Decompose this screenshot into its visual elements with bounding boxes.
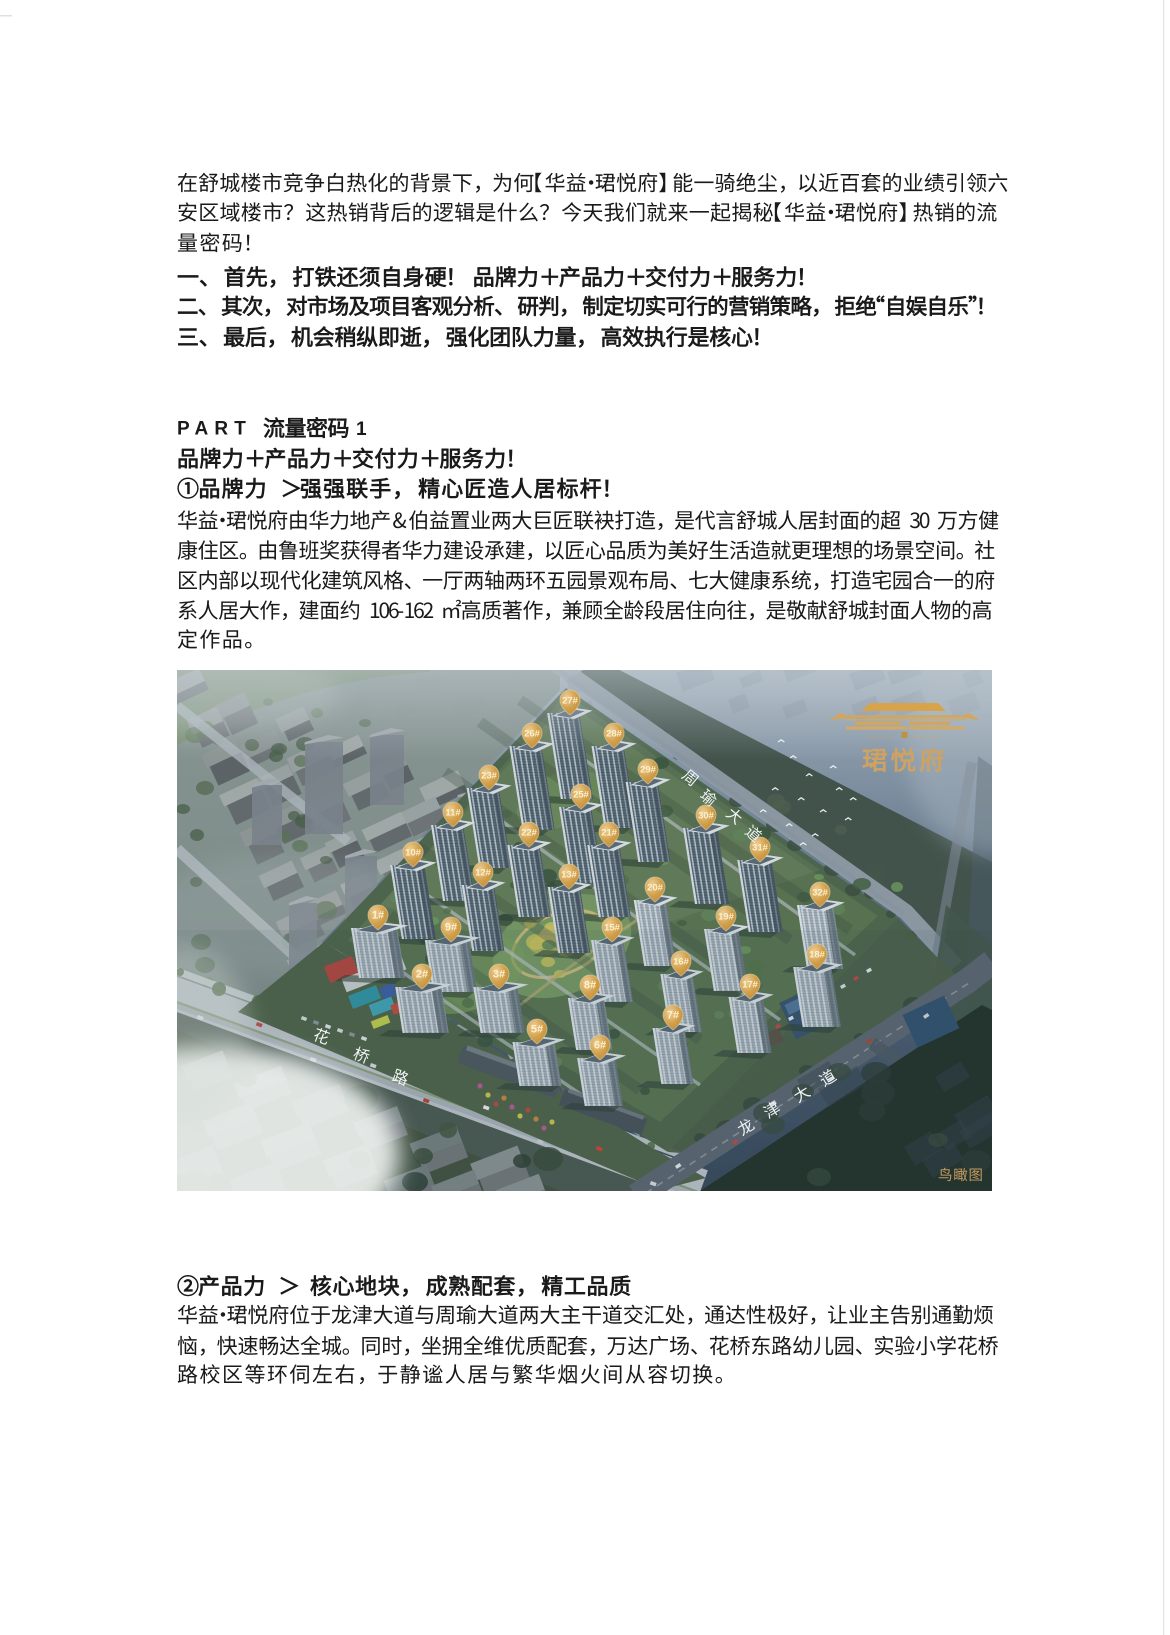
- svg-text:28#: 28#: [606, 729, 623, 740]
- svg-text:JUN YUE: JUN YUE: [867, 735, 894, 740]
- svg-text:2#: 2#: [416, 969, 428, 981]
- svg-text:13#: 13#: [561, 870, 578, 881]
- svg-text:8#: 8#: [584, 980, 596, 992]
- svg-text:23#: 23#: [481, 771, 498, 782]
- svg-text:16#: 16#: [673, 957, 690, 968]
- svg-text:21#: 21#: [601, 828, 618, 839]
- svg-text:PART: PART: [177, 419, 252, 440]
- svg-text:3#: 3#: [493, 969, 505, 981]
- svg-text:MANSION: MANSION: [911, 735, 939, 740]
- svg-text:1#: 1#: [372, 910, 384, 922]
- svg-text:27#: 27#: [562, 696, 579, 707]
- svg-text:25#: 25#: [573, 790, 590, 801]
- svg-text:22#: 22#: [521, 828, 538, 839]
- svg-text:6#: 6#: [594, 1040, 606, 1052]
- svg-text:5#: 5#: [531, 1024, 543, 1036]
- svg-text:7#: 7#: [667, 1010, 679, 1022]
- svg-text:15#: 15#: [604, 923, 621, 934]
- svg-text:20#: 20#: [647, 883, 664, 894]
- svg-text:32#: 32#: [812, 888, 829, 899]
- svg-text:29#: 29#: [640, 765, 657, 776]
- svg-text:19#: 19#: [718, 912, 735, 923]
- svg-text:1: 1: [356, 419, 367, 440]
- svg-text:9#: 9#: [445, 922, 457, 934]
- svg-text:31#: 31#: [752, 843, 769, 854]
- svg-text:10#: 10#: [405, 848, 422, 859]
- svg-text:18#: 18#: [809, 950, 826, 961]
- svg-text:12#: 12#: [475, 868, 492, 879]
- svg-text:17#: 17#: [742, 980, 759, 991]
- svg-text:30#: 30#: [698, 811, 715, 822]
- svg-text:26#: 26#: [524, 729, 541, 740]
- svg-text:11#: 11#: [445, 808, 461, 819]
